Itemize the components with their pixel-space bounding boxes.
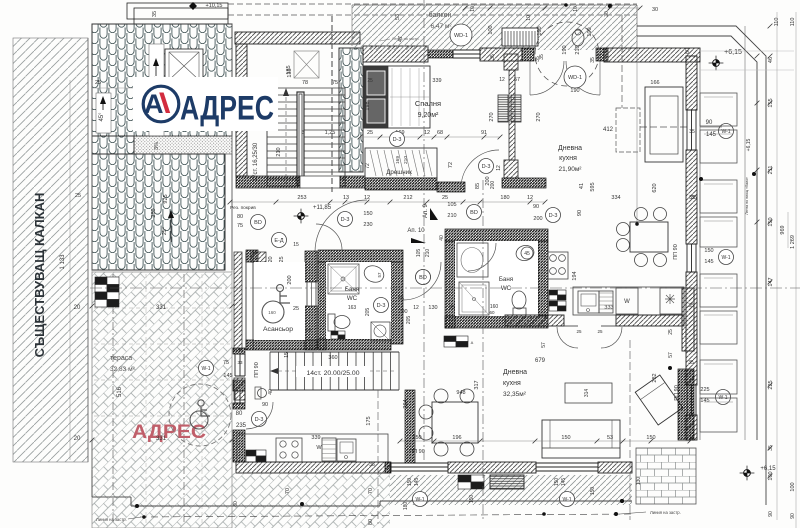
svg-text:334: 334	[611, 195, 620, 201]
svg-text:20: 20	[74, 305, 81, 311]
svg-text:145: 145	[706, 132, 717, 138]
svg-text:70: 70	[285, 488, 291, 494]
svg-text:150: 150	[768, 217, 774, 226]
svg-text:595: 595	[590, 182, 596, 191]
svg-text:+11,85: +11,85	[313, 205, 332, 211]
svg-text:175: 175	[366, 416, 372, 425]
svg-text:270: 270	[536, 112, 542, 121]
svg-text:339: 339	[432, 78, 441, 84]
svg-text:Асансьор: Асансьор	[263, 326, 293, 333]
svg-text:Лента на застр.: Лента на застр.	[392, 37, 419, 41]
svg-text:90: 90	[768, 511, 774, 517]
svg-text:110: 110	[790, 18, 796, 27]
svg-text:948: 948	[456, 390, 465, 396]
svg-text:145: 145	[700, 398, 709, 404]
svg-text:516: 516	[117, 386, 123, 397]
svg-text:160: 160	[268, 310, 276, 315]
svg-text:25: 25	[95, 80, 101, 86]
svg-text:Дрешник: Дрешник	[386, 169, 412, 176]
svg-text:60: 60	[489, 310, 495, 315]
svg-text:145: 145	[223, 373, 232, 379]
svg-text:35: 35	[689, 195, 695, 201]
svg-text:150: 150	[554, 478, 560, 487]
svg-text:35: 35	[689, 129, 695, 135]
svg-text:D-3: D-3	[393, 137, 402, 143]
svg-text:100: 100	[768, 471, 774, 480]
svg-text:+6,15: +6,15	[760, 466, 776, 472]
svg-text:190: 190	[562, 45, 568, 54]
svg-text:57: 57	[541, 342, 547, 348]
svg-text:194: 194	[572, 271, 578, 280]
svg-text:130: 130	[636, 477, 642, 486]
svg-text:57: 57	[377, 272, 382, 278]
svg-text:211: 211	[768, 166, 774, 175]
svg-text:21,90м²: 21,90м²	[559, 166, 583, 173]
svg-text:6,47 м²: 6,47 м²	[430, 23, 452, 30]
svg-text:72: 72	[448, 162, 454, 168]
svg-text:+10,15: +10,15	[206, 3, 223, 9]
svg-text:BD: BD	[419, 275, 427, 281]
svg-text:105: 105	[447, 202, 456, 208]
svg-text:145: 145	[704, 259, 713, 265]
svg-text:32,83 м²: 32,83 м²	[110, 366, 136, 373]
svg-text:W-1: W-1	[721, 255, 730, 261]
svg-text:100: 100	[537, 26, 543, 35]
svg-text:280: 280	[151, 208, 157, 217]
svg-text:Ап. 10: Ап. 10	[407, 228, 425, 234]
svg-text:100: 100	[587, 27, 593, 36]
svg-text:331: 331	[156, 436, 167, 442]
svg-text:Е-Д: Е-Д	[274, 238, 284, 244]
svg-text:360: 360	[328, 355, 337, 361]
svg-text:Спалня: Спалня	[415, 99, 441, 108]
svg-text:200: 200	[485, 176, 491, 185]
svg-text:25: 25	[75, 193, 81, 199]
svg-text:925: 925	[163, 194, 169, 203]
svg-text:СЪЩЕСТВУВАЩ КАЛКАН: СЪЩЕСТВУВАЩ КАЛКАН	[32, 193, 47, 358]
svg-text:10: 10	[573, 6, 579, 12]
svg-text:205: 205	[365, 308, 371, 317]
svg-text:80: 80	[368, 519, 374, 525]
svg-text:150: 150	[561, 435, 570, 441]
svg-text:41: 41	[579, 183, 585, 189]
svg-text:155: 155	[768, 98, 774, 107]
svg-text:200: 200	[398, 309, 407, 315]
svg-text:Баня: Баня	[345, 286, 359, 293]
svg-text:1,25: 1,25	[325, 130, 336, 136]
svg-text:D-3: D-3	[341, 217, 350, 223]
svg-text:25: 25	[597, 329, 603, 334]
svg-text:40: 40	[439, 235, 445, 241]
svg-text:25: 25	[576, 329, 582, 334]
svg-text:25: 25	[293, 306, 299, 312]
svg-text:130: 130	[428, 305, 437, 311]
svg-text:1 269: 1 269	[790, 235, 796, 249]
svg-text:190: 190	[570, 88, 579, 94]
svg-text:969: 969	[780, 225, 786, 234]
svg-text:30: 30	[604, 11, 610, 17]
svg-text:12: 12	[424, 130, 430, 136]
svg-text:20: 20	[74, 436, 81, 442]
svg-text:225: 225	[768, 380, 774, 389]
svg-text:W-1: W-1	[562, 497, 571, 503]
svg-text:BD: BD	[254, 220, 262, 226]
svg-text:35: 35	[369, 462, 375, 468]
svg-text:47: 47	[398, 36, 404, 42]
svg-text:53: 53	[395, 14, 401, 20]
svg-text:30: 30	[652, 7, 658, 13]
svg-text:балкон: балкон	[429, 11, 452, 19]
svg-text:3%: 3%	[154, 142, 160, 150]
svg-text:W: W	[624, 299, 630, 305]
svg-text:+6,15: +6,15	[746, 138, 752, 151]
svg-text:270: 270	[489, 112, 495, 121]
svg-text:235: 235	[236, 423, 247, 429]
svg-text:кухня: кухня	[503, 380, 521, 387]
svg-text:282: 282	[652, 373, 658, 382]
svg-text:90: 90	[790, 513, 796, 519]
svg-text:679: 679	[535, 358, 546, 364]
svg-text:W-1: W-1	[201, 366, 210, 372]
svg-text:вих: вих	[305, 327, 311, 332]
svg-text:150: 150	[704, 248, 713, 254]
svg-text:620: 620	[652, 183, 658, 192]
svg-text:32,35м²: 32,35м²	[503, 391, 527, 398]
svg-text:90: 90	[262, 402, 268, 408]
svg-text:12: 12	[496, 165, 502, 171]
svg-text:33: 33	[237, 360, 243, 365]
svg-text:150: 150	[646, 435, 655, 441]
svg-text:10: 10	[526, 15, 532, 21]
svg-text:253: 253	[297, 195, 306, 201]
svg-text:200: 200	[533, 216, 542, 222]
svg-text:57: 57	[514, 77, 520, 83]
svg-text:17ст. 16,25/30: 17ст. 16,25/30	[253, 142, 259, 181]
svg-text:W: W	[316, 445, 322, 451]
svg-text:D-3: D-3	[255, 417, 264, 423]
svg-text:78: 78	[302, 80, 308, 86]
svg-text:АДРЕС: АДРЕС	[132, 422, 206, 443]
svg-text:198: 198	[365, 101, 371, 110]
svg-text:210: 210	[403, 156, 409, 164]
svg-text:WD-1: WD-1	[568, 75, 582, 81]
svg-text:169: 169	[395, 156, 401, 164]
svg-text:45°: 45°	[99, 112, 105, 122]
svg-text:314: 314	[584, 389, 590, 398]
svg-text:10: 10	[470, 6, 476, 12]
svg-text:12: 12	[499, 77, 505, 83]
svg-text:Лента по площ «балк»: Лента по площ «балк»	[745, 177, 749, 215]
svg-text:+6,15: +6,15	[724, 49, 742, 56]
svg-text:25: 25	[668, 329, 674, 335]
svg-text:90: 90	[533, 204, 539, 210]
svg-text:35: 35	[590, 57, 596, 63]
svg-text:А: А	[471, 340, 474, 345]
svg-text:45: 45	[524, 251, 530, 257]
svg-text:90: 90	[577, 210, 583, 216]
svg-text:75: 75	[332, 80, 338, 86]
svg-text:75: 75	[237, 223, 243, 229]
svg-text:Линия на застр.: Линия на застр.	[650, 510, 681, 515]
svg-text:80: 80	[233, 501, 239, 507]
svg-text:WC: WC	[501, 285, 512, 292]
svg-text:3: 3	[301, 130, 304, 136]
svg-text:205: 205	[406, 316, 412, 325]
svg-text:35: 35	[768, 445, 774, 451]
svg-text:100: 100	[488, 25, 494, 34]
svg-text:ПП 90: ПП 90	[254, 362, 260, 378]
svg-text:40: 40	[268, 389, 274, 395]
svg-text:25: 25	[367, 130, 373, 136]
svg-text:Линия на застр.: Линия на застр.	[96, 517, 127, 522]
svg-text:339: 339	[311, 435, 320, 441]
svg-text:230: 230	[363, 222, 372, 228]
svg-text:90: 90	[706, 120, 713, 126]
svg-text:46: 46	[768, 57, 774, 63]
svg-text:210: 210	[425, 249, 431, 258]
svg-text:Дневна: Дневна	[503, 369, 527, 376]
svg-text:35: 35	[535, 56, 541, 62]
svg-text:196: 196	[452, 435, 461, 441]
svg-text:57: 57	[668, 352, 674, 358]
svg-text:150: 150	[407, 478, 413, 487]
svg-text:Дневна: Дневна	[558, 145, 582, 152]
svg-text:210: 210	[447, 213, 456, 219]
svg-text:210: 210	[276, 147, 282, 156]
svg-text:D-3: D-3	[377, 303, 386, 309]
svg-text:412: 412	[603, 127, 614, 133]
svg-text:135: 135	[286, 65, 292, 74]
svg-text:WD-1: WD-1	[454, 33, 468, 39]
svg-text:9,20м²: 9,20м²	[418, 112, 439, 119]
svg-text:14ст. 20.00/25.00: 14ст. 20.00/25.00	[306, 370, 359, 377]
svg-text:180: 180	[500, 195, 509, 201]
svg-text:85: 85	[398, 296, 404, 302]
svg-text:150: 150	[590, 487, 596, 496]
svg-text:D-3: D-3	[549, 213, 558, 219]
svg-text:15: 15	[293, 242, 299, 248]
svg-text:200: 200	[287, 275, 293, 284]
svg-text:163: 163	[348, 305, 357, 311]
svg-text:166: 166	[650, 80, 659, 86]
svg-text:W-1: W-1	[415, 497, 424, 503]
svg-text:Баня: Баня	[499, 276, 513, 283]
svg-text:25°: 25°	[162, 227, 168, 235]
svg-text:80: 80	[237, 214, 243, 220]
svg-text:145: 145	[561, 478, 567, 487]
svg-text:АДРЕС: АДРЕС	[180, 90, 274, 128]
svg-text:15: 15	[284, 352, 290, 358]
svg-text:53: 53	[607, 435, 613, 441]
svg-text:85: 85	[475, 183, 481, 189]
svg-text:80: 80	[236, 411, 243, 417]
svg-text:105: 105	[416, 249, 422, 258]
svg-text:тераса: тераса	[110, 355, 132, 362]
svg-text:кухня: кухня	[559, 155, 577, 162]
svg-text:Рез. покрив: Рез. покрив	[230, 205, 256, 211]
svg-text:WC: WC	[347, 295, 358, 302]
svg-text:210: 210	[575, 45, 581, 54]
svg-text:12: 12	[413, 305, 419, 311]
svg-text:D-3: D-3	[482, 164, 491, 170]
svg-text:25: 25	[367, 78, 373, 84]
svg-text:13: 13	[343, 195, 349, 201]
svg-text:75: 75	[223, 360, 229, 366]
svg-text:1 133: 1 133	[60, 254, 66, 270]
svg-text:25: 25	[442, 195, 448, 201]
svg-text:72: 72	[365, 163, 371, 169]
svg-text:70: 70	[368, 488, 374, 494]
svg-text:35: 35	[688, 360, 694, 366]
svg-text:333: 333	[604, 305, 613, 311]
svg-text:317: 317	[474, 380, 480, 389]
svg-text:150: 150	[469, 495, 475, 504]
svg-text:147: 147	[768, 277, 774, 286]
svg-text:331: 331	[156, 305, 167, 311]
svg-text:150: 150	[363, 211, 372, 217]
svg-text:180: 180	[403, 502, 409, 511]
svg-text:212: 212	[403, 195, 412, 201]
svg-text:225: 225	[700, 387, 709, 393]
svg-text:ПП 90: ПП 90	[673, 244, 679, 260]
svg-text:100: 100	[790, 482, 796, 491]
svg-text:BD: BD	[470, 210, 478, 216]
svg-text:145: 145	[414, 478, 420, 487]
svg-text:35: 35	[152, 11, 158, 17]
svg-text:68: 68	[437, 130, 443, 136]
